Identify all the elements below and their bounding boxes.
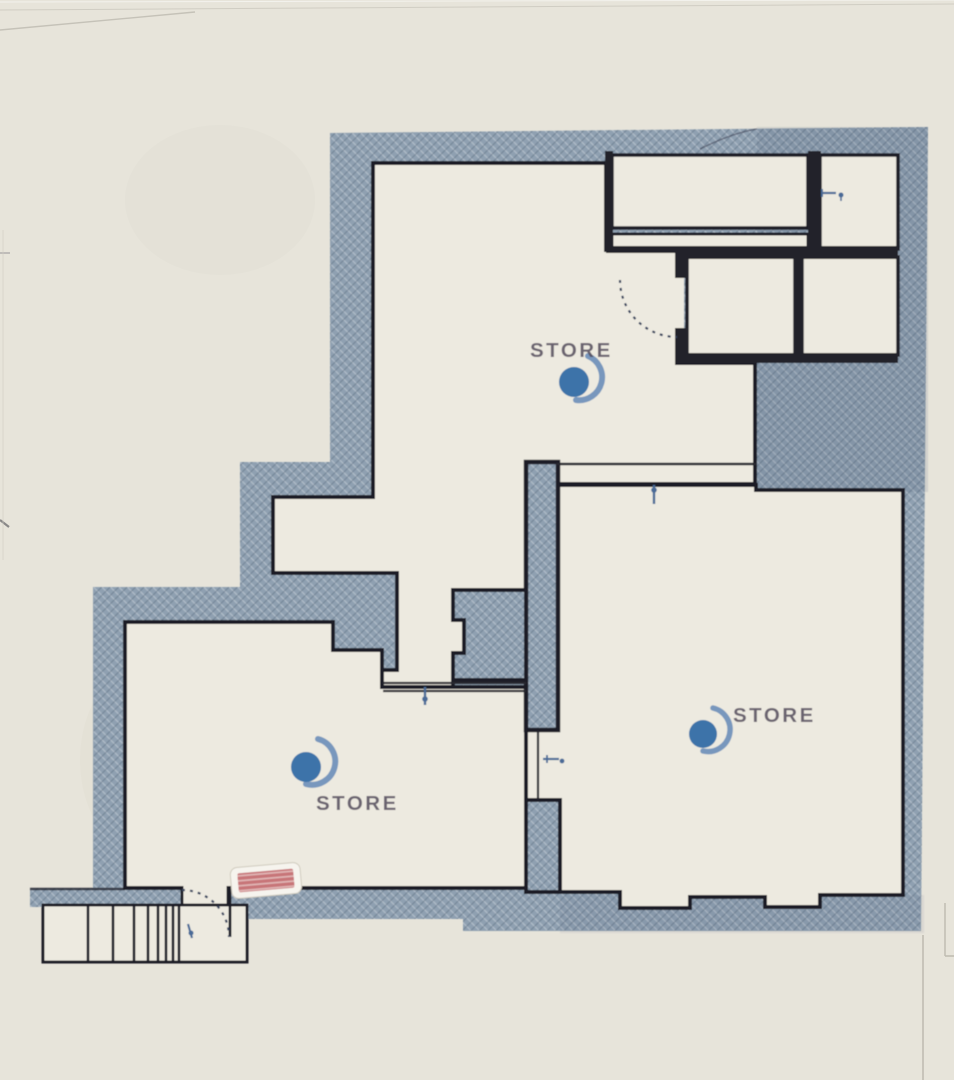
- wall-pier-block: [453, 590, 526, 680]
- wall-segment: [677, 249, 898, 259]
- wall-segment: [808, 151, 821, 250]
- wall-segment: [605, 151, 613, 251]
- room-floor-top-strip: [612, 155, 808, 228]
- wall-pillar-lower: [526, 800, 560, 892]
- logo-circle: [559, 367, 589, 397]
- doorway-opening-middle-room: [671, 278, 684, 328]
- room-floor-middle-right: [802, 257, 898, 355]
- room-floor-top-right: [820, 155, 898, 249]
- door-jamb: [675, 250, 688, 278]
- wall-shading-bottom: [560, 895, 924, 933]
- logo-circle: [689, 720, 717, 748]
- room-label-store-top: STORE: [530, 339, 613, 362]
- room-floor-middle: [687, 257, 795, 357]
- room-label-store-right: STORE: [733, 704, 816, 727]
- logo-circle: [291, 752, 321, 782]
- wall-segment: [794, 255, 803, 358]
- room-label-store-bottom-left: STORE: [316, 792, 399, 815]
- wall-segment: [677, 353, 898, 363]
- floor-plan-scan: STORE STORE STORE: [0, 0, 954, 1080]
- wall-pillar-upper: [526, 462, 558, 730]
- paper-stain: [125, 125, 315, 275]
- room-floor-store-right: [526, 485, 903, 908]
- stair-enclosure: [43, 905, 247, 962]
- red-entrance-sign: [230, 862, 302, 899]
- door-jamb: [675, 328, 688, 363]
- floor-plan-svg: STORE STORE STORE: [0, 0, 954, 1080]
